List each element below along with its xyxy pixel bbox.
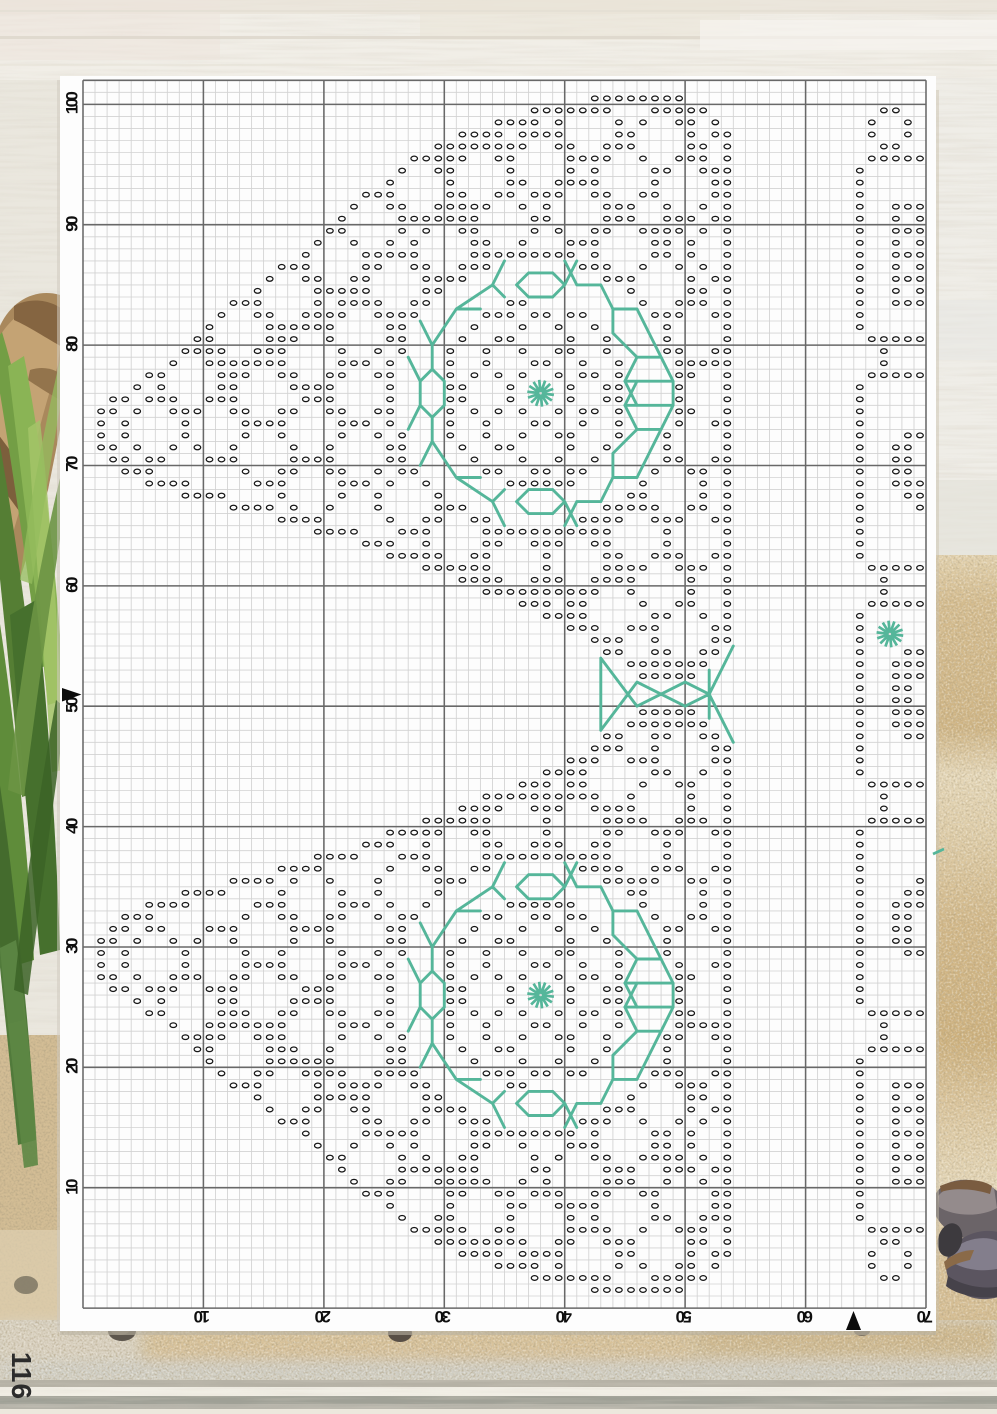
svg-text:30: 30 (63, 938, 82, 954)
svg-text:90: 90 (63, 216, 82, 232)
svg-text:60: 60 (797, 1307, 813, 1326)
svg-text:40: 40 (63, 818, 82, 834)
svg-text:70: 70 (63, 456, 82, 472)
svg-text:20: 20 (63, 1058, 82, 1074)
svg-text:30: 30 (435, 1307, 451, 1326)
svg-text:40: 40 (556, 1307, 572, 1326)
svg-text:10: 10 (194, 1307, 210, 1326)
svg-text:20: 20 (315, 1307, 331, 1326)
svg-text:50: 50 (676, 1307, 692, 1326)
svg-text:70: 70 (917, 1307, 933, 1326)
svg-text:10: 10 (63, 1179, 82, 1195)
svg-text:80: 80 (63, 336, 82, 352)
svg-text:60: 60 (63, 577, 82, 593)
svg-text:100: 100 (63, 92, 82, 115)
